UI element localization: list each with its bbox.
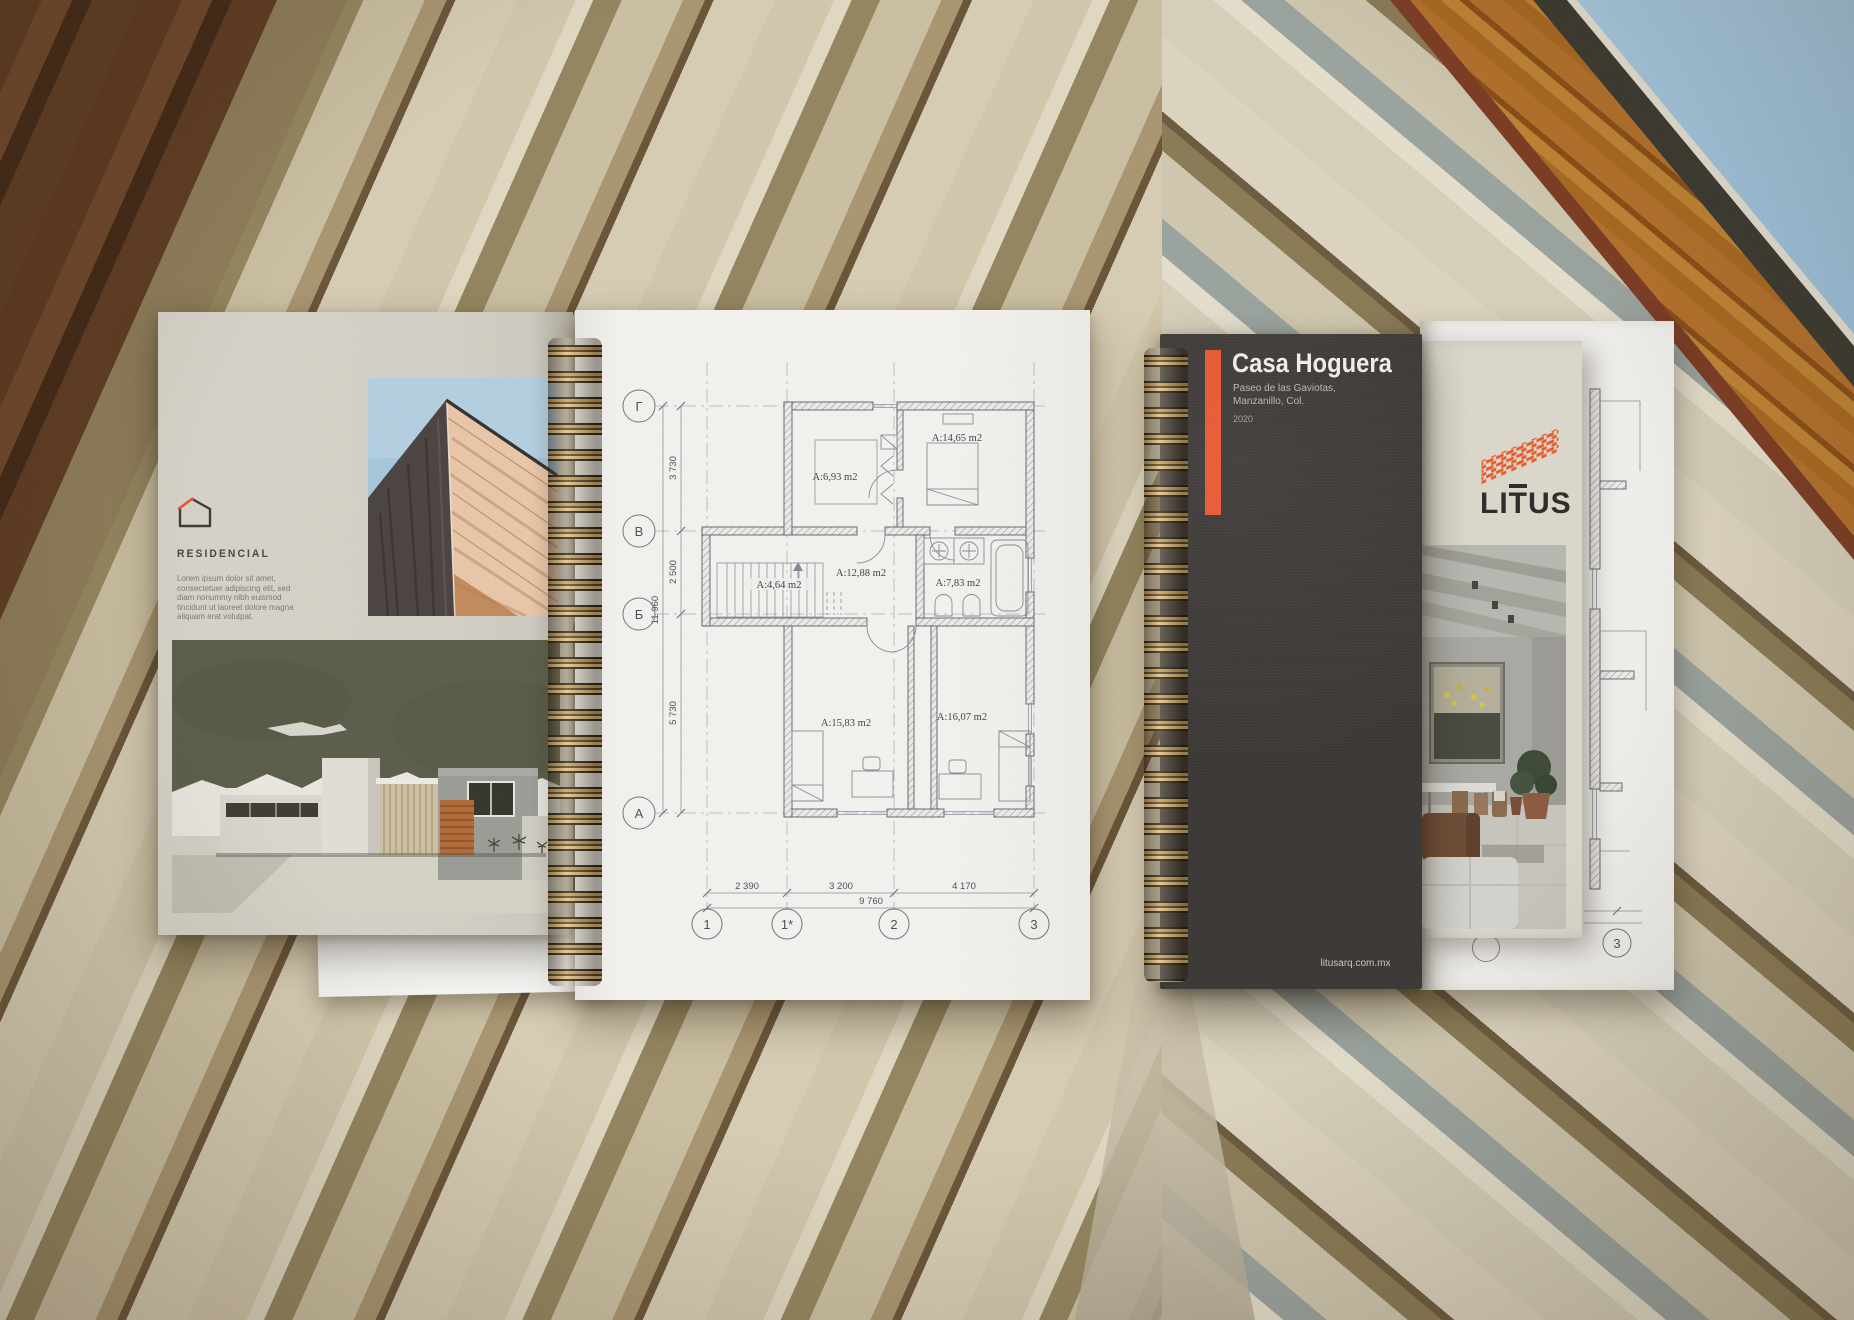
axis-label: В — [635, 524, 644, 539]
axis-label: 3 — [1030, 917, 1037, 932]
axis-circle-partial — [1472, 934, 1500, 962]
axis-label: 1 — [703, 917, 710, 932]
dim-label: 11 960 — [650, 596, 661, 624]
address-line: Paseo de las Gaviotas, — [1233, 382, 1336, 395]
brand-text: LITUS — [1480, 487, 1572, 520]
dim-label: 4 170 — [952, 881, 976, 892]
room-label: A:7,83 m2 — [936, 578, 981, 589]
axis-label: А — [635, 806, 644, 821]
dim-label: 3 730 — [668, 456, 679, 480]
litus-logo-icon — [1476, 419, 1564, 489]
mockup-scene: RESIDENCIAL Lorem ipsum dolor sit amet, … — [0, 0, 1854, 1320]
dim-label: 3 200 — [829, 881, 853, 892]
house-render-collage — [172, 640, 560, 913]
dim-label: 5 730 — [668, 701, 679, 725]
project-title: Casa Hoguera — [1232, 348, 1392, 379]
brand-wordmark: LITUS — [1480, 487, 1572, 521]
room-label: A:4,64 m2 — [757, 580, 802, 591]
back-plan-drawing: 3 — [1582, 331, 1672, 979]
room-label: A:14,65 m2 — [932, 433, 982, 444]
room-label: A:15,83 m2 — [821, 718, 871, 729]
litus-panel: LITUS — [1418, 341, 1582, 938]
spiral-binding-icon — [1144, 348, 1188, 982]
interior-photo — [1422, 545, 1566, 929]
accent-bar — [1205, 350, 1221, 515]
project-address: Paseo de las Gaviotas, Manzanillo, Col. — [1233, 382, 1336, 408]
intro-paragraph: Lorem ipsum dolor sit amet, consectetuer… — [177, 574, 299, 622]
spiral-binding-icon — [548, 338, 602, 986]
axis-label: Г — [635, 399, 642, 414]
floor-plan-page: A:6,93 m2 A:14,65 m2 A:12,88 m2 A:4,64 m… — [575, 310, 1090, 1000]
house-icon — [177, 496, 213, 529]
website-url: litusarq.com.mx — [1268, 958, 1443, 969]
dim-label: 2 390 — [735, 881, 759, 892]
axis-label: 1* — [781, 917, 793, 932]
casa-hoguera-cover: Casa Hoguera Paseo de las Gaviotas, Manz… — [1160, 334, 1422, 989]
room-label: A:12,88 m2 — [836, 568, 886, 579]
axis-label: 3 — [1613, 936, 1620, 951]
project-year: 2020 — [1233, 414, 1253, 424]
room-label: A:6,93 m2 — [813, 472, 858, 483]
floor-plan-drawing: A:6,93 m2 A:14,65 m2 A:12,88 m2 A:4,64 m… — [575, 310, 1090, 1000]
axis-label: Б — [635, 607, 644, 622]
brand-macron — [1509, 484, 1527, 488]
axis-label: 2 — [890, 917, 897, 932]
left-brochure-page: RESIDENCIAL Lorem ipsum dolor sit amet, … — [158, 312, 573, 935]
section-label: RESIDENCIAL — [177, 548, 270, 560]
dim-label: 2 500 — [668, 560, 679, 584]
dim-label: 9 760 — [859, 896, 883, 907]
room-label: A:16,07 m2 — [937, 712, 987, 723]
building-corner-photo — [368, 378, 558, 616]
address-line: Manzanillo, Col. — [1233, 395, 1336, 408]
